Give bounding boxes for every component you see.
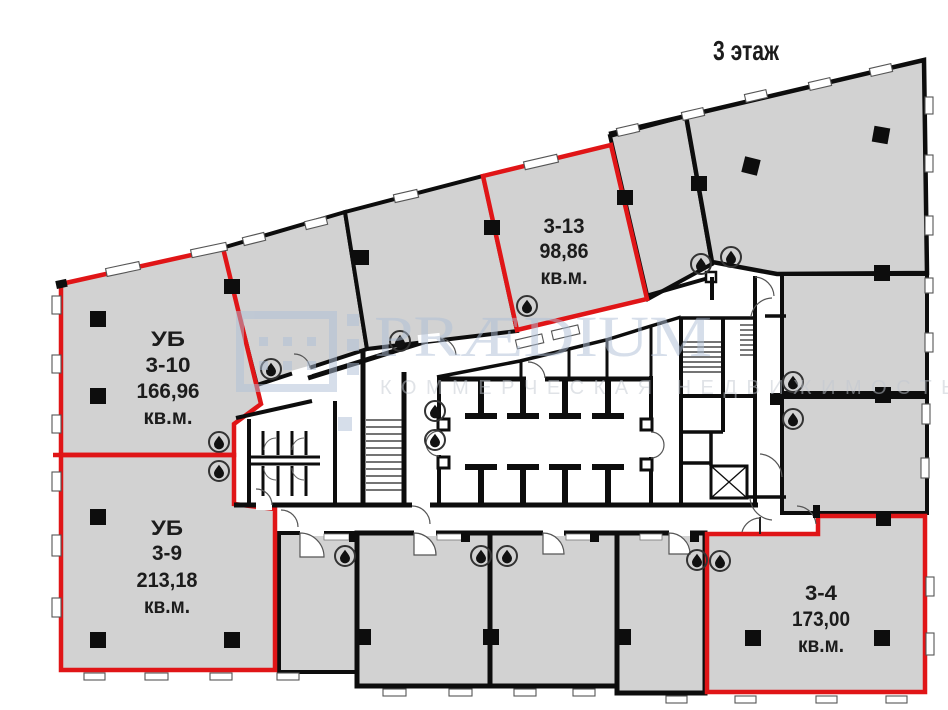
svg-text:кв.м.: кв.м. <box>541 266 588 289</box>
svg-text:213,18: 213,18 <box>137 569 198 592</box>
svg-text:кв.м.: кв.м. <box>144 406 193 429</box>
svg-text:166,96: 166,96 <box>137 380 200 403</box>
svg-text:3-10: 3-10 <box>146 354 191 377</box>
svg-text:УБ: УБ <box>151 517 183 540</box>
svg-text:3-13: 3-13 <box>544 215 585 238</box>
svg-text:3-4: 3-4 <box>805 582 837 605</box>
svg-text:98,86: 98,86 <box>540 240 589 263</box>
svg-text:3 этаж: 3 этаж <box>713 35 780 66</box>
svg-text:кв.м.: кв.м. <box>144 595 190 618</box>
svg-text:PRÆDIUM: PRÆDIUM <box>374 304 712 369</box>
svg-text:КОММЕРЧЕСКАЯ НЕДВИЖИМОСТЬ: КОММЕРЧЕСКАЯ НЕДВИЖИМОСТЬ <box>380 377 948 399</box>
svg-text:173,00: 173,00 <box>792 608 850 631</box>
svg-text:3-9: 3-9 <box>152 542 182 565</box>
svg-text:УБ: УБ <box>151 328 185 351</box>
svg-text:кв.м.: кв.м. <box>798 634 844 657</box>
